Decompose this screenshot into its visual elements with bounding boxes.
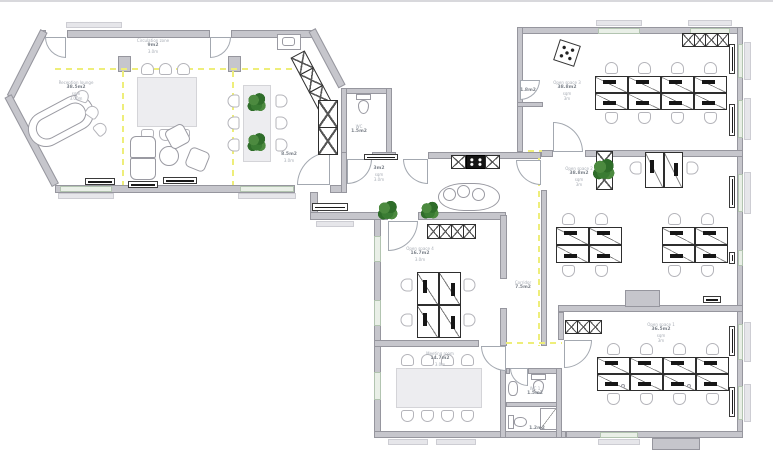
wall-diagonal [7,29,48,99]
monitor [670,254,683,258]
wall [386,88,392,159]
monitor [638,361,651,365]
chair [401,314,413,327]
desk [645,152,664,188]
room-label-wc-2: 1.2m2 [522,426,552,432]
desk [694,76,727,93]
entrance-bench [364,154,398,160]
window-sill [744,384,751,422]
radiator [729,176,735,208]
window-sill [744,98,751,140]
cabinet-cell [451,155,466,169]
cabinet-cell [589,320,602,334]
window-sill [688,20,732,26]
window [738,250,743,266]
wall [558,312,564,340]
desk [439,272,461,305]
desk [417,272,439,305]
monitor [423,313,427,326]
wall-notch [652,438,700,450]
stove [466,155,486,169]
top-frame-line [0,0,773,2]
monitor [669,80,682,84]
chair [92,120,110,138]
wall [506,402,558,407]
chair [276,117,288,130]
chair [228,139,240,152]
chair [687,162,699,175]
monitor [603,101,616,105]
shelf [703,296,721,303]
chair [562,213,575,225]
monitor [671,382,684,386]
desk [628,76,661,93]
sofa-cushion [443,188,456,201]
wall [541,190,547,346]
chair [605,112,618,124]
monitor [703,231,716,235]
window [600,432,638,438]
chair [638,62,651,74]
chair [668,265,681,277]
window [738,174,743,212]
window [738,324,743,360]
mouse [621,384,625,388]
cabinet-cell [318,100,338,128]
chair [607,343,620,355]
chair [706,393,719,405]
chair [228,117,240,130]
monitor [703,254,716,258]
desk [661,76,694,93]
storage-cabinet [318,101,338,155]
chair [668,213,681,225]
sofa-cushion [472,188,485,201]
desk [695,227,728,245]
meeting-table [396,368,482,408]
mouse [687,384,691,388]
chair [159,63,172,75]
chair [464,314,476,327]
circulation-dash [122,71,124,185]
chair [671,62,684,74]
sofa [130,136,156,158]
monitor [597,254,610,258]
storage-cabinet [428,224,476,239]
window-sill [744,322,751,362]
plant [247,132,266,152]
chair [276,95,288,108]
wall [500,215,507,279]
desk [589,227,622,245]
window [374,236,381,262]
door-arc [516,160,541,185]
window-sill [744,42,751,80]
cabinet-cell [463,224,476,239]
monitor [671,361,684,365]
monitor [605,382,618,386]
monitor [674,163,678,176]
room-label-office: Open space 4 16.7m2 3.0m [395,246,445,262]
radiator [729,44,735,74]
monitor [451,283,455,296]
window [240,186,294,192]
desk [556,227,589,245]
radiator [85,178,115,185]
toilet-bowl [358,100,369,114]
plant [247,92,266,112]
door-arc [481,346,506,371]
room-label-vestibule: 1.8m2 [514,88,542,94]
kitchenette-cabinet [486,155,500,169]
chair [141,63,154,75]
chair [701,265,714,277]
wall [737,27,743,438]
window [374,372,381,400]
window-sill [598,439,640,445]
sofa [130,158,156,180]
desk [696,357,729,374]
wall [541,150,553,157]
storage-cabinet [683,33,729,47]
desk [439,305,461,338]
chair [701,213,714,225]
storage-cabinet [566,320,602,334]
entrance-door-arc [403,159,428,184]
room-label-open-space-2: Open space 2 38.8m2 sqm 3m [556,166,602,187]
chair [464,279,476,292]
circulation-dash [506,342,562,344]
room-label-lounge: Reception lounge 38.5m2 sqm 3.00m [52,80,100,101]
kitchenette-cabinet [452,155,466,169]
cabinet-cell [318,127,338,155]
room-label-wc-small: WC 1.5m2 [344,124,374,135]
desk [662,227,695,245]
monitor [603,80,616,84]
plant [420,201,439,219]
chair [704,62,717,74]
armchair [184,146,211,173]
room-label-meeting: Meeting room 14.7m2 3.0m [412,351,468,367]
pillar [625,290,660,307]
room-label-corridor: Corridor 7.5m2 [504,280,542,291]
room-label-entrance: 3m2 sqm 3.0m [362,166,396,182]
chair [401,410,414,422]
circulation-dash [528,150,542,152]
wall [500,308,507,346]
door-arc [210,37,231,58]
door-arc [553,122,583,152]
window-sill [436,439,476,445]
window-sill [596,20,642,26]
chair [673,343,686,355]
monitor [702,80,715,84]
circulation-dash [538,158,540,346]
floor-plan: Reception lounge 38.5m2 sqm 3.00m Circul… [0,0,773,465]
window [738,100,743,138]
wall [517,102,543,107]
door-arc [45,37,66,58]
desk [630,357,663,374]
desk [597,357,630,374]
monitor [702,101,715,105]
monitor [636,80,649,84]
desk [595,76,628,93]
sink [508,381,518,396]
radiator [729,104,735,136]
monitor [670,231,683,235]
radiator [729,387,735,417]
printer-table [553,39,581,67]
monitor [451,316,455,329]
chair [640,343,653,355]
monitor [423,280,427,293]
monitor [669,101,682,105]
monitor [704,361,717,365]
room-label-open-space-1: Open space 1 36.5m2 sqm 3m [638,322,684,343]
window-sill [744,172,751,214]
monitor [636,101,649,105]
chair [441,410,454,422]
monitor [704,382,717,386]
chair [562,265,575,277]
chair [706,343,719,355]
wall [231,30,315,38]
monitor [564,254,577,258]
window-sill [238,193,296,199]
room-label-open-space-3: Open space 3 38.8m2 sqm 3m [544,80,590,101]
chair [401,279,413,292]
wall [374,340,479,347]
door-arc [564,340,592,368]
wall [374,431,566,438]
radiator [128,181,158,188]
window [738,44,743,78]
chair [595,265,608,277]
cabinet-cell [717,33,730,47]
desk [663,357,696,374]
window [60,186,112,192]
desk [417,305,439,338]
chair [704,112,717,124]
wall [566,431,743,438]
window-sill [388,439,428,445]
chair [228,95,240,108]
monitor [638,382,651,386]
cabinet-cell [485,155,500,169]
chair [177,63,190,75]
monitor [564,231,577,235]
chair [673,393,686,405]
window [598,28,640,34]
kitchen-sink-basin [282,37,295,46]
monitor [650,160,654,173]
chair [421,410,434,422]
sofa-cushion [457,185,470,198]
window-sill [66,22,122,28]
wall [67,30,210,38]
chair [605,62,618,74]
chair [461,410,474,422]
chair [607,393,620,405]
room-label-zone3: 8.5m2 3.0m [274,152,304,163]
room-label-wc-1: WC 1 1.5m2 [518,386,552,397]
window-sill [316,221,354,227]
chair [671,112,684,124]
chair [595,213,608,225]
chair [640,393,653,405]
monitor [597,231,610,235]
radiator [729,252,735,264]
chair [630,162,642,175]
window [374,300,381,326]
window-sill [58,193,114,199]
meeting-table [137,77,197,127]
chair [638,112,651,124]
radiator [163,177,197,184]
room-label-circulation: Circulation zone 9m2 3.0m [126,38,180,54]
monitor [605,361,618,365]
plant [377,200,398,220]
radiator [729,326,735,356]
radiator [312,203,348,211]
window [738,386,743,420]
chair [276,139,288,152]
